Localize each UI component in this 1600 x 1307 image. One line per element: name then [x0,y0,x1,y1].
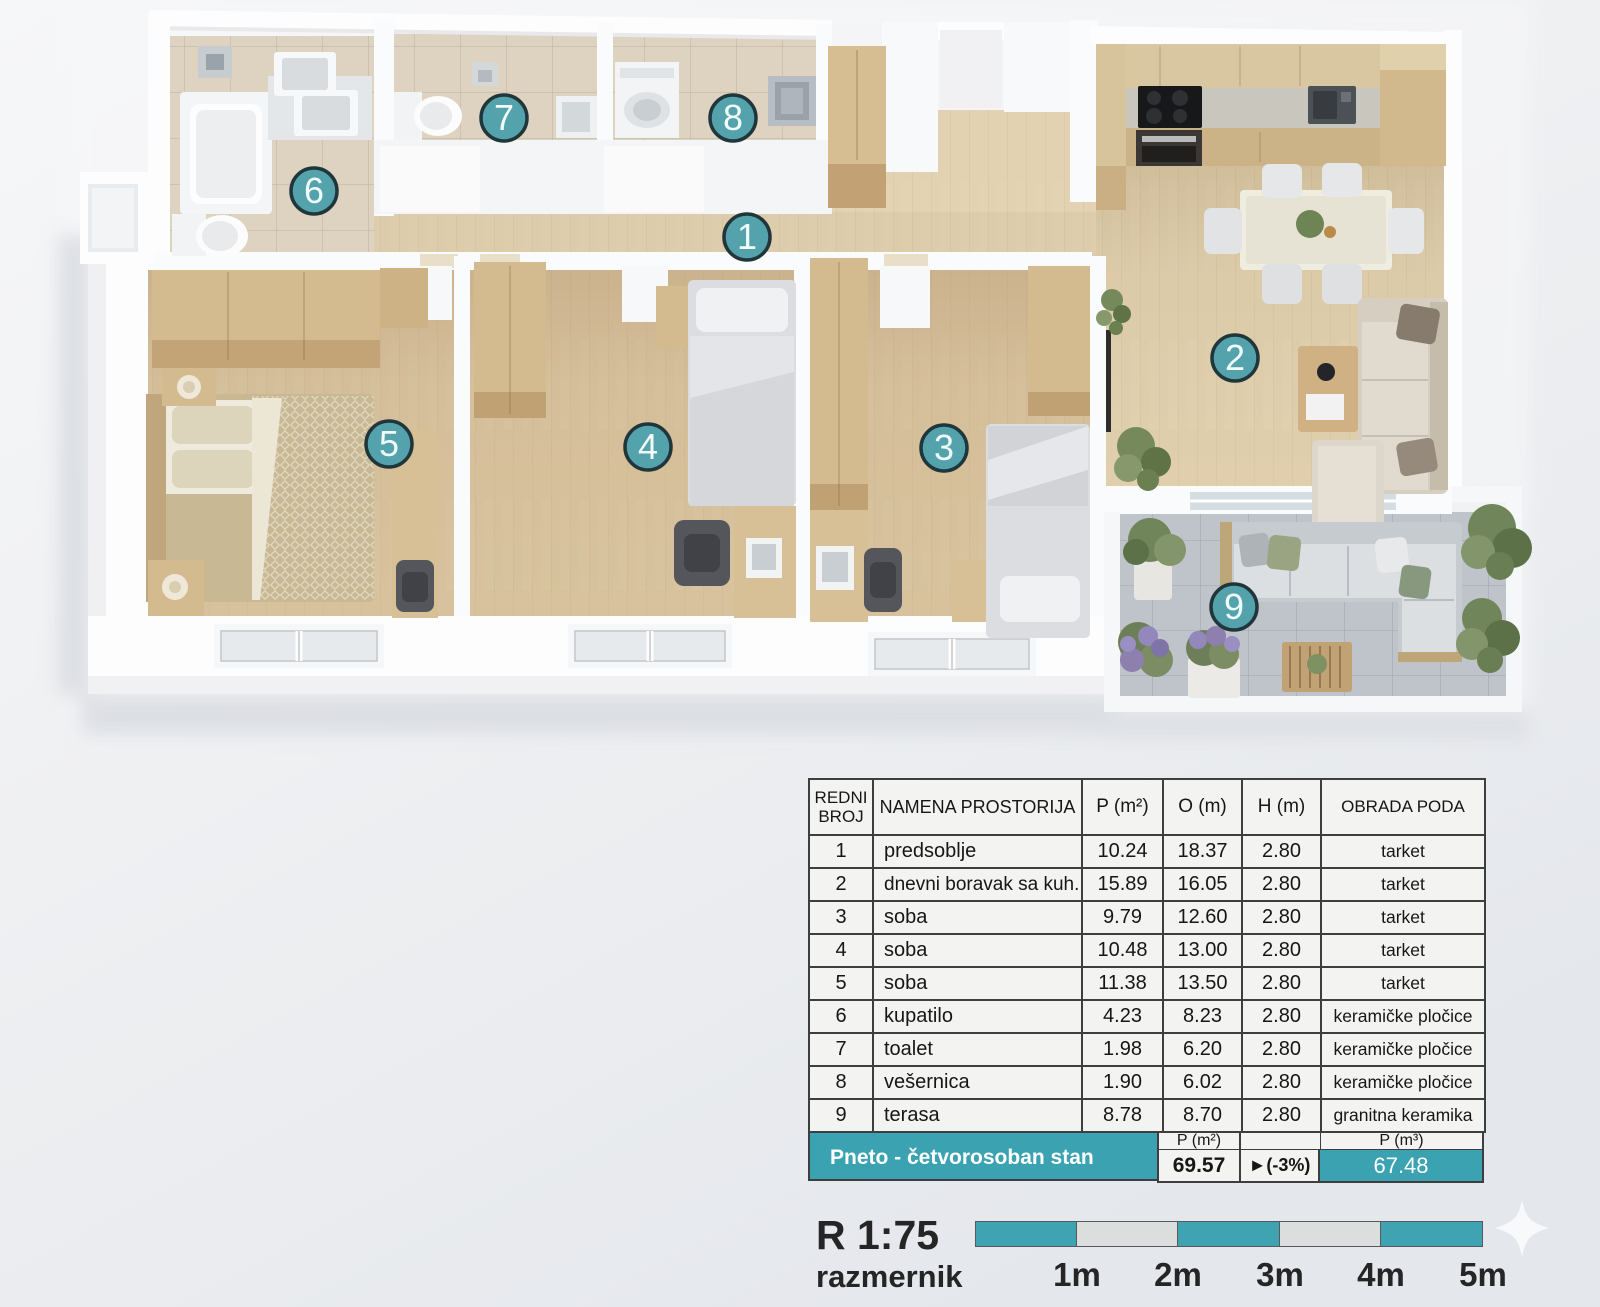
svg-text:4: 4 [638,426,658,467]
svg-text:1: 1 [737,216,757,257]
svg-text:9: 9 [1224,586,1244,627]
svg-text:6: 6 [304,170,324,211]
svg-text:2: 2 [1225,337,1245,378]
svg-text:3: 3 [934,427,954,468]
svg-text:7: 7 [494,97,514,138]
svg-text:5: 5 [379,423,399,464]
svg-text:8: 8 [723,97,743,138]
